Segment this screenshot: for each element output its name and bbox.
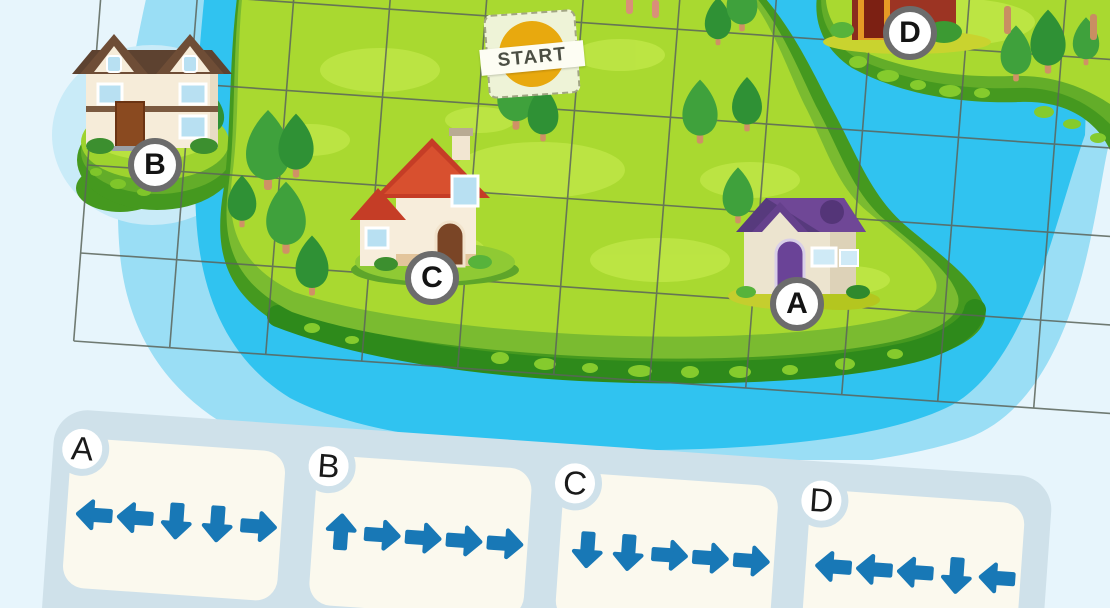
arrow-right-icon: [237, 505, 280, 548]
arrow-right-icon: [442, 519, 485, 562]
start-label: START: [479, 40, 585, 76]
map-label-d[interactable]: D: [883, 6, 937, 60]
map-label-a[interactable]: A: [770, 277, 824, 331]
map-label-b[interactable]: B: [128, 138, 182, 192]
arrow-right-icon: [689, 537, 732, 580]
arrow-left-icon: [114, 496, 157, 539]
card-d[interactable]: D: [801, 489, 1026, 608]
arrow-down-icon: [935, 554, 978, 597]
start-sign[interactable]: START: [483, 9, 581, 99]
arrow-left-icon: [73, 494, 116, 537]
arrow-down-icon: [196, 502, 239, 545]
arrow-right-icon: [730, 540, 773, 583]
card-b[interactable]: B: [308, 454, 533, 608]
arrow-left-icon: [853, 548, 896, 591]
arrow-left-icon: [976, 557, 1019, 600]
card-a[interactable]: A: [62, 437, 287, 602]
map-label-c[interactable]: C: [405, 251, 459, 305]
arrow-right-icon: [483, 522, 526, 565]
arrow-down-icon: [155, 499, 198, 542]
arrow-up-icon: [320, 511, 363, 554]
arrow-down-icon: [566, 528, 609, 571]
arrow-right-icon: [401, 517, 444, 560]
arrow-down-icon: [607, 531, 650, 574]
house-b[interactable]: [72, 34, 232, 154]
arrow-right-icon: [361, 514, 404, 557]
arrow-left-icon: [812, 545, 855, 588]
arrow-right-icon: [648, 534, 691, 577]
worksheet-stage: START A B C D A B C D: [0, 0, 1110, 608]
card-c[interactable]: C: [554, 472, 779, 608]
arrow-left-icon: [894, 551, 937, 594]
